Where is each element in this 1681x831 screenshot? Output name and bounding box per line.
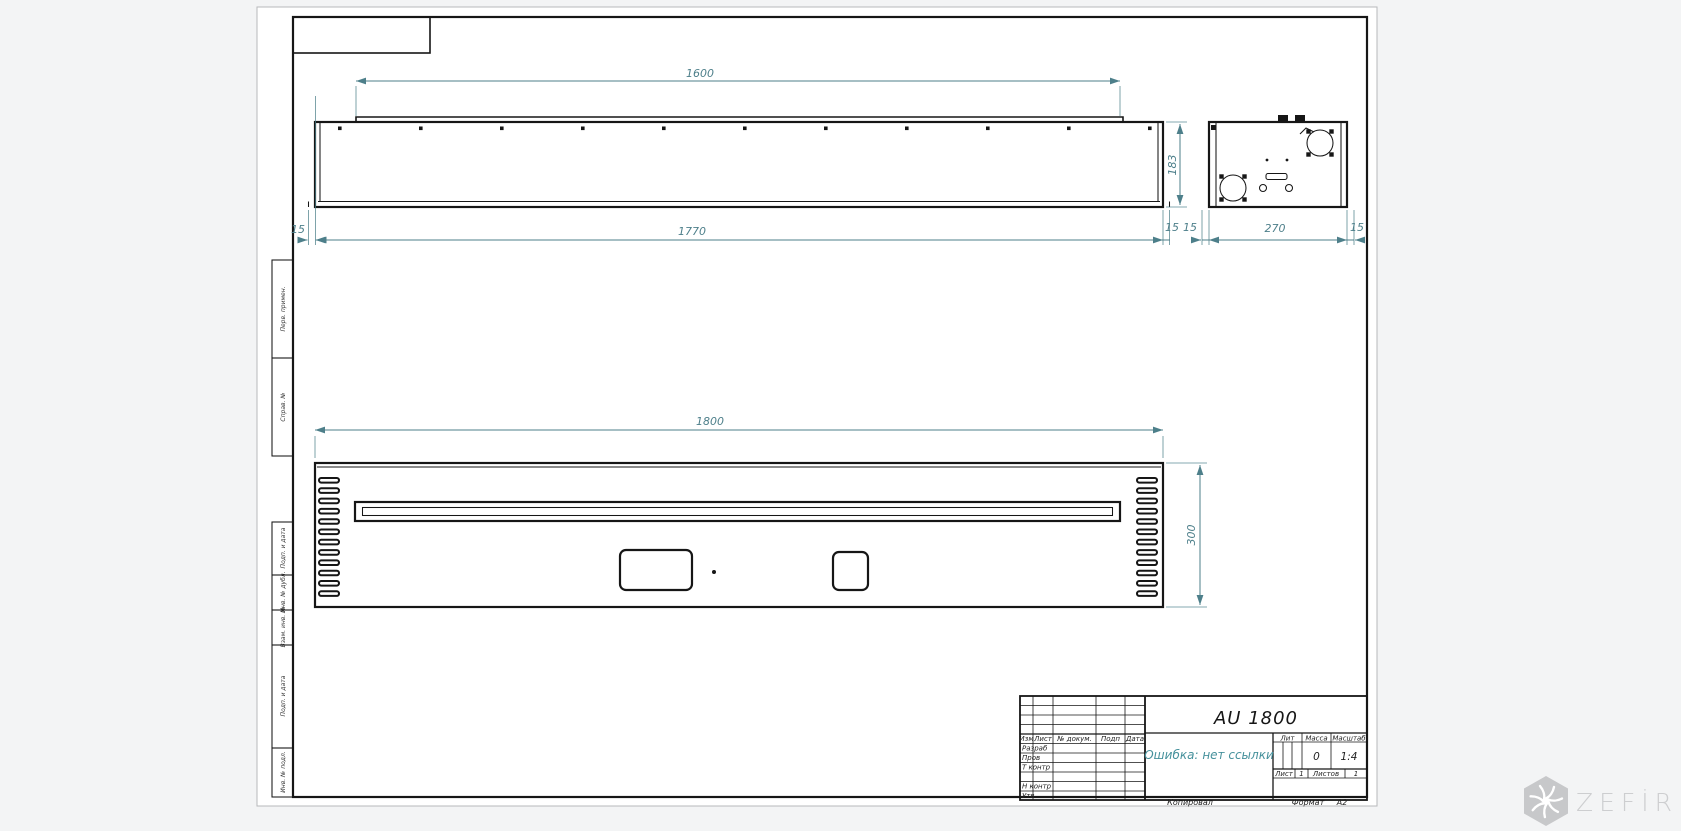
watermark: ZEFİRE xyxy=(1524,776,1681,826)
rivet-dot xyxy=(1148,127,1152,131)
louver-slot xyxy=(1137,499,1157,504)
louver-slot xyxy=(1137,530,1157,535)
louver-slot xyxy=(319,499,339,504)
rivet-dot xyxy=(581,127,585,131)
swirl-center xyxy=(1544,799,1548,803)
louver-slot xyxy=(319,581,339,586)
tb-lit-label: Лит xyxy=(1280,735,1296,743)
margin-label: Инв. № подл. xyxy=(280,751,287,792)
louver-slot xyxy=(1137,519,1157,524)
tb-role: Н контр xyxy=(1022,783,1052,791)
margin-label: Инв. № дубл. xyxy=(280,571,287,612)
louver-slot xyxy=(1137,581,1157,586)
tb-header-podp: Подп xyxy=(1101,735,1120,743)
margin-label: Перв. примен. xyxy=(280,286,287,331)
top-tab xyxy=(1295,115,1305,122)
tb-sheets-value: 1 xyxy=(1354,770,1358,778)
corner-weld-mark xyxy=(1211,125,1216,130)
rivet-dot xyxy=(419,127,423,131)
tb-sheets-label: Листов xyxy=(1312,770,1339,778)
fan-mount-pad xyxy=(1306,129,1310,133)
louver-slot xyxy=(1137,478,1157,483)
louver-slot xyxy=(1137,571,1157,576)
tb-header-list: Лист xyxy=(1033,735,1053,743)
louver-slot xyxy=(1137,488,1157,493)
tb-header-data: Дата xyxy=(1125,735,1144,743)
louver-slot xyxy=(1137,540,1157,545)
tb-role: Разраб xyxy=(1022,745,1048,753)
rivet-dot xyxy=(1067,127,1071,131)
louver-slot xyxy=(1137,509,1157,514)
margin-label: Справ. № xyxy=(280,392,287,421)
louver-slot xyxy=(319,550,339,555)
dim-front-width: 1800 xyxy=(696,415,724,428)
louver-slot xyxy=(319,530,339,535)
dim-side-height: 183 xyxy=(1166,155,1179,176)
louver-slot xyxy=(319,488,339,493)
rivet-dot xyxy=(662,127,666,131)
screw-hole xyxy=(1286,159,1289,162)
margin-label: Взам. инв. № xyxy=(280,607,287,648)
dim-end-width: 270 xyxy=(1265,222,1286,235)
dim-flange: 15 xyxy=(1183,221,1197,234)
engineering-drawing: Перв. примен. Справ. № Подп. и дата Инв.… xyxy=(0,0,1681,831)
fan-mount-pad xyxy=(1329,129,1333,133)
tb-role: Утв xyxy=(1022,792,1034,800)
dim-lid-length: 1600 xyxy=(686,67,714,80)
rivet-dot xyxy=(743,127,747,131)
fan-mount-pad xyxy=(1219,197,1223,201)
louver-slot xyxy=(1137,591,1157,596)
reference-error-note: Ошибка: нет ссылки xyxy=(1144,748,1274,762)
copied-label: Копировал xyxy=(1167,798,1213,807)
dim-flange: 15 xyxy=(291,223,305,236)
louver-slot xyxy=(319,560,339,565)
fan-mount-pad xyxy=(1329,152,1333,156)
louver-slot xyxy=(319,478,339,483)
louver-slot xyxy=(319,519,339,524)
drawing-title: AU 1800 xyxy=(1213,708,1298,729)
louver-slot xyxy=(1137,550,1157,555)
louver-slot xyxy=(319,571,339,576)
dim-flange: 15 xyxy=(1350,221,1364,234)
dim-front-height: 300 xyxy=(1185,525,1198,546)
fan-mount-pad xyxy=(1242,197,1246,201)
rivet-dot xyxy=(824,127,828,131)
dim-flange: 15 xyxy=(1165,221,1179,234)
tb-scale-value: 1:4 xyxy=(1341,751,1358,763)
led-hole xyxy=(712,570,716,574)
margin-label: Подп. и дата xyxy=(280,527,287,568)
tb-mass-label: Масса xyxy=(1305,735,1327,743)
watermark-brand: ZEFİRE xyxy=(1576,788,1681,817)
louver-slot xyxy=(319,509,339,514)
format-value: А2 xyxy=(1336,798,1348,807)
tb-role: Пров xyxy=(1022,754,1040,762)
fan-mount-pad xyxy=(1219,174,1223,178)
dim-body-length: 1770 xyxy=(678,225,706,238)
cad-viewer-canvas: Перв. примен. Справ. № Подп. и дата Инв.… xyxy=(0,0,1681,831)
margin-label: Подп. и дата xyxy=(280,675,287,716)
louver-slot xyxy=(319,591,339,596)
tb-header-doc: № докум. xyxy=(1056,735,1092,743)
rivet-dot xyxy=(986,127,990,131)
rivet-dot xyxy=(905,127,909,131)
tb-scale-label: Масштаб xyxy=(1332,735,1366,743)
rivet-dot xyxy=(338,127,342,131)
tb-sheet-label: Лист xyxy=(1274,770,1294,778)
format-label: Формат xyxy=(1292,798,1325,807)
louver-slot xyxy=(1137,560,1157,565)
louver-slot xyxy=(319,540,339,545)
tb-sheet-value: 1 xyxy=(1299,770,1303,778)
fan-mount-pad xyxy=(1306,152,1310,156)
tb-header-izm: Изм xyxy=(1019,735,1034,743)
tb-mass-value: 0 xyxy=(1313,751,1320,763)
fan-mount-pad xyxy=(1242,174,1246,178)
screw-hole xyxy=(1266,159,1269,162)
tb-role: Т контр xyxy=(1022,764,1051,772)
rivet-dot xyxy=(500,127,504,131)
top-tab xyxy=(1278,115,1288,122)
